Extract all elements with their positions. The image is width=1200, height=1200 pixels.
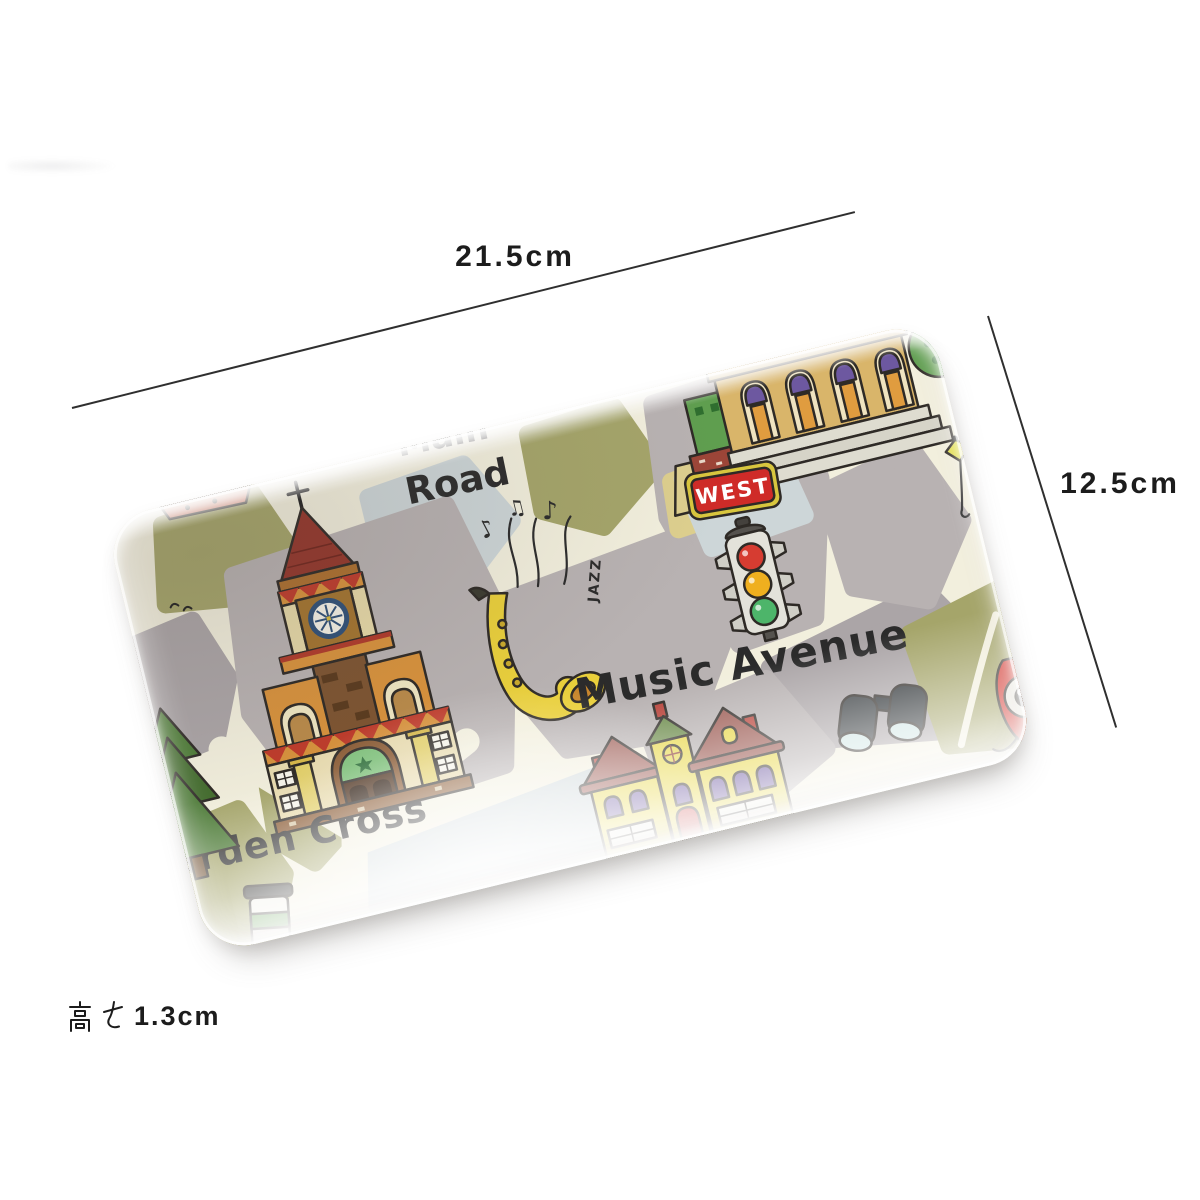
height-dimension-label: 12.5cm xyxy=(1020,467,1200,501)
tray-surface: WEST ♪ ♫ xyxy=(104,320,1035,955)
photo-smudge xyxy=(8,158,118,174)
width-dimension-label: 21.5cm xyxy=(365,240,665,274)
depth-dimension-value: 1.3cm xyxy=(134,1001,221,1032)
tray-rim xyxy=(104,320,1035,955)
tray-photo: WEST ♪ ♫ xyxy=(104,320,1035,955)
depth-dimension-label: 1.3cm xyxy=(66,1000,221,1032)
takasa-kanji xyxy=(66,1000,128,1032)
